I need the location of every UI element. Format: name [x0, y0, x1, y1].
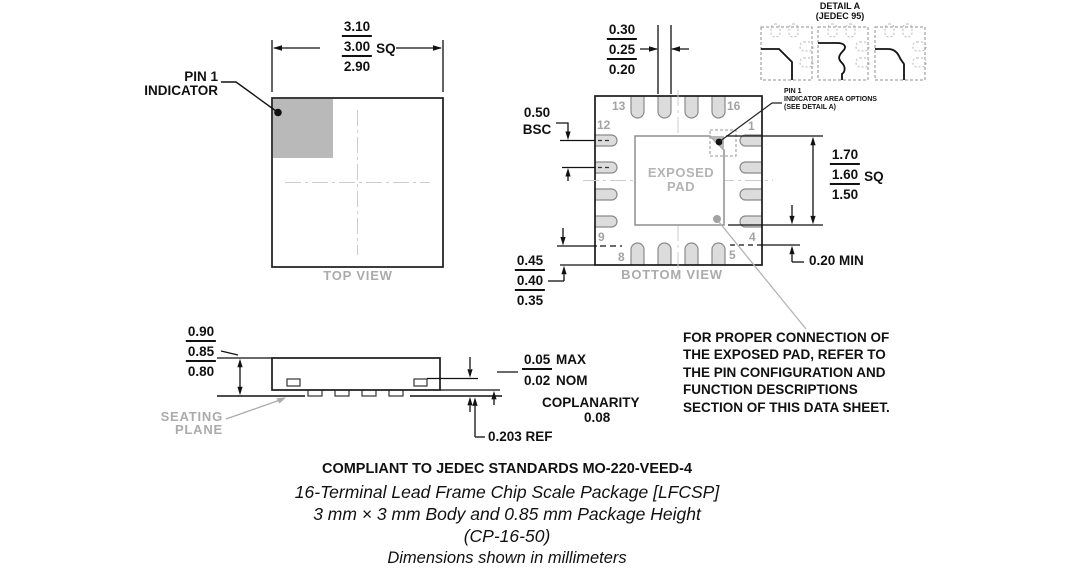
pin-number-9: 9	[598, 230, 605, 244]
package-body-size: 3 mm × 3 mm Body and 0.85 mm Package Hei…	[313, 504, 701, 525]
package-code: (CP-16-50)	[464, 526, 551, 547]
jedec-compliance-note: COMPLIANT TO JEDEC STANDARDS MO-220-VEED…	[322, 461, 692, 477]
pad-clearance-dimension: 0.20 MIN	[809, 253, 864, 268]
top-view-drawing	[221, 40, 443, 267]
standoff-nom-dimension: 0.02 NOM	[522, 373, 588, 391]
exposed-pad-note: FOR PROPER CONNECTION OF THE EXPOSED PAD…	[683, 329, 890, 416]
coplanarity-label: COPLANARITY	[542, 395, 640, 410]
bottom-view-label: BOTTOM VIEW	[621, 267, 723, 282]
pin-number-12: 12	[597, 118, 610, 132]
side-view-drawing	[217, 351, 518, 437]
pin1-area-options-note: PIN 1 INDICATOR AREA OPTIONS (SEE DETAIL…	[784, 88, 877, 113]
package-outline-drawing: 3.10 3.00SQ 2.90 PIN 1 INDICATOR TOP VIE…	[0, 0, 1080, 568]
detail-mini-terminals	[771, 24, 926, 67]
top-view-label: TOP VIEW	[323, 268, 393, 283]
pitch-dimension: 0.50 BSC	[523, 105, 552, 139]
pin-number-5: 5	[729, 248, 736, 262]
terminal-width-dimension: 0.30 0.25 0.20	[607, 22, 637, 82]
pin-number-13: 13	[612, 99, 625, 113]
pin-number-8: 8	[618, 250, 625, 264]
exposed-pad-dot	[713, 215, 721, 223]
package-height-dimension: 0.90 0.85 0.80	[186, 324, 216, 384]
seating-plane-label: SEATING PLANE	[143, 410, 223, 436]
coplanarity-value: 0.08	[584, 410, 610, 425]
units-note: Dimensions shown in millimeters	[387, 549, 626, 568]
pin1-leader-dot	[274, 109, 282, 117]
terminal-length-dimension: 0.45 0.40 0.35	[515, 253, 545, 313]
exposed-pad-label: EXPOSED PAD	[648, 166, 714, 193]
pin-number-1: 1	[748, 119, 755, 133]
pin-number-16: 16	[727, 99, 740, 113]
pin1-corner-options	[761, 43, 904, 80]
detail-a-drawing	[761, 24, 926, 80]
pin1-indicator-label: PIN 1 INDICATOR	[128, 70, 218, 97]
detail-a-title: DETAIL A (JEDEC 95)	[816, 1, 865, 21]
package-name: 16-Terminal Lead Frame Chip Scale Packag…	[295, 482, 719, 503]
lead-thickness-dimension: 0.203 REF	[488, 429, 553, 444]
pin1-indicator-square	[273, 99, 333, 158]
body-size-dimension: 3.10 3.00SQ 2.90	[342, 19, 372, 79]
pin-number-4: 4	[749, 230, 756, 244]
exposed-pad-dimension: 1.70 1.60SQ 1.50	[830, 147, 860, 207]
standoff-max-dimension: 0.05 MAX	[522, 352, 586, 370]
